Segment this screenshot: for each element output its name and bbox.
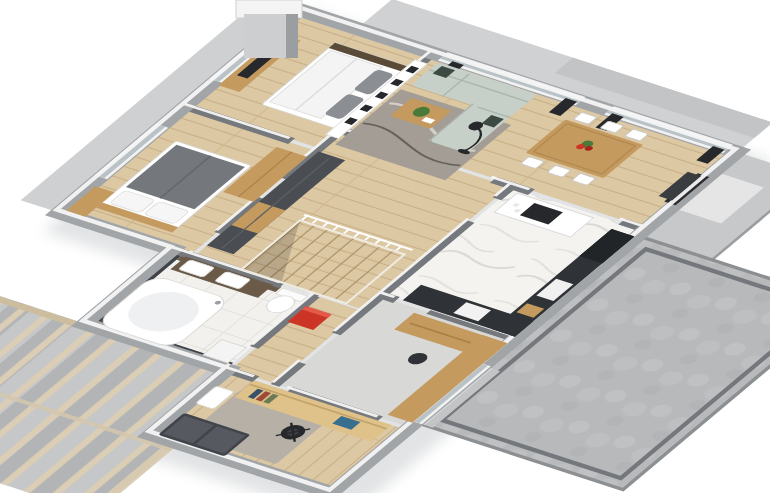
double-bed bbox=[261, 43, 411, 129]
book bbox=[255, 391, 271, 401]
entry-door-mat bbox=[659, 172, 701, 201]
terrace-rim bbox=[421, 238, 770, 490]
utility-room-floor bbox=[278, 297, 512, 426]
ne-roof-band bbox=[357, 0, 770, 152]
utility-room bbox=[319, 313, 507, 423]
red-sideboard bbox=[288, 306, 332, 330]
floor-plan-render bbox=[0, 0, 770, 493]
stool bbox=[404, 351, 431, 366]
desk-shelf bbox=[234, 380, 391, 441]
carport bbox=[0, 290, 256, 493]
terrace-border-frame bbox=[442, 249, 770, 478]
closet-wood-door bbox=[231, 202, 285, 234]
kitchen-sink bbox=[453, 302, 491, 321]
dining-table bbox=[526, 119, 644, 178]
kitchen-counter-bottom bbox=[403, 285, 534, 337]
arc-floor-lamp bbox=[443, 120, 500, 155]
bedroom-2 bbox=[66, 115, 307, 252]
interior-wall-tops bbox=[0, 7, 735, 426]
washbasin-counter bbox=[170, 256, 273, 297]
chimney-body bbox=[244, 14, 296, 58]
daybed bbox=[158, 413, 251, 456]
entry-landing bbox=[677, 173, 764, 223]
bed-frame-edge bbox=[329, 43, 411, 73]
pillow bbox=[324, 93, 366, 119]
master-bedroom bbox=[206, 21, 427, 139]
stair-railing-handrail bbox=[304, 215, 412, 250]
duvet bbox=[270, 50, 383, 118]
laptop bbox=[332, 416, 360, 430]
stair-stringer bbox=[242, 220, 405, 303]
bathroom-floor bbox=[88, 252, 312, 368]
book bbox=[263, 394, 279, 404]
wardrobe bbox=[223, 147, 307, 202]
window-frames bbox=[0, 10, 737, 422]
kitchen-island bbox=[494, 193, 593, 237]
ne-roof-band-outer bbox=[555, 58, 770, 138]
entrance-door bbox=[670, 175, 704, 203]
headboard-shelf bbox=[326, 60, 427, 139]
chimney-roof-top bbox=[236, 0, 302, 18]
ne-roof-band-edge bbox=[357, 25, 742, 152]
chimney-shaded-side bbox=[286, 14, 298, 58]
nw-roof-band bbox=[21, 0, 300, 213]
tv bbox=[237, 48, 280, 78]
terrace bbox=[418, 236, 770, 489]
master-bedroom-floor bbox=[189, 12, 430, 148]
entry-walkway bbox=[644, 154, 770, 260]
floors bbox=[0, 12, 734, 491]
kitchen-counter-right bbox=[492, 229, 634, 337]
sofa-pillow bbox=[482, 115, 504, 127]
kitchen-floor bbox=[386, 188, 642, 337]
sofa-pillow bbox=[433, 66, 456, 78]
bathroom bbox=[95, 254, 307, 365]
exterior-walls bbox=[0, 10, 737, 493]
stair-railing-posts bbox=[304, 217, 409, 251]
dining-chair bbox=[547, 165, 571, 177]
sink-basin bbox=[512, 203, 520, 208]
floor-plan-canvas bbox=[0, 0, 770, 493]
hall-extension-floor bbox=[231, 297, 361, 384]
rug-swirl bbox=[370, 102, 494, 153]
carport-cross-beam bbox=[0, 360, 172, 450]
built-in-closet bbox=[207, 152, 345, 255]
terrace-step bbox=[418, 366, 493, 425]
dining-area bbox=[515, 110, 654, 187]
duvet bbox=[126, 145, 245, 210]
dining-chair bbox=[573, 112, 597, 124]
hallway bbox=[164, 152, 471, 331]
dining-chair bbox=[625, 129, 649, 141]
corner-sofa bbox=[368, 62, 537, 153]
interior-walls bbox=[0, 10, 737, 429]
sink-basin bbox=[513, 209, 521, 214]
office-floor bbox=[154, 372, 404, 491]
washbasin bbox=[178, 260, 214, 278]
coffee-table bbox=[390, 98, 451, 129]
bench bbox=[196, 386, 235, 409]
headboard bbox=[96, 203, 178, 233]
terrace-step bbox=[425, 369, 500, 428]
flower-centerpiece bbox=[574, 139, 598, 152]
living-area-rug bbox=[335, 89, 511, 180]
cooktop bbox=[520, 203, 563, 224]
curtain bbox=[696, 146, 724, 164]
chimney bbox=[236, 0, 302, 58]
dining-chair bbox=[600, 121, 624, 133]
tv-sideboard bbox=[218, 34, 300, 92]
toilet bbox=[259, 288, 307, 316]
walkway-edge bbox=[712, 176, 770, 260]
office-chair bbox=[276, 423, 310, 442]
carport-slab bbox=[0, 290, 256, 493]
living-room bbox=[335, 57, 724, 237]
curtain bbox=[436, 61, 464, 79]
dining-chair bbox=[572, 173, 596, 185]
dining-chair bbox=[521, 157, 545, 169]
corner-bathtub bbox=[95, 275, 231, 349]
roof-edge-bands bbox=[21, 0, 770, 355]
building-shadow bbox=[0, 24, 747, 493]
office-rug bbox=[187, 390, 330, 464]
exterior-wall-tops bbox=[0, 7, 735, 490]
bedroom-2-floor bbox=[62, 108, 315, 254]
oven bbox=[536, 279, 573, 301]
pillow bbox=[353, 69, 395, 95]
carport-header-beam bbox=[0, 292, 253, 382]
hallway-floor bbox=[195, 132, 509, 309]
pillow bbox=[144, 201, 190, 224]
walkway-surface bbox=[644, 154, 770, 260]
pillow bbox=[109, 190, 155, 213]
curtain bbox=[595, 113, 623, 131]
living-room-floor bbox=[345, 55, 734, 227]
carport-roof-beams bbox=[0, 290, 256, 493]
nw-roof-band-edge bbox=[53, 8, 300, 212]
potted-plant bbox=[409, 105, 433, 118]
tub-faucet bbox=[214, 300, 223, 305]
tall-cabinet bbox=[579, 229, 634, 263]
office bbox=[158, 373, 391, 487]
washing-machine bbox=[203, 339, 246, 362]
carport-edge-beam bbox=[89, 377, 250, 493]
rug-swirl bbox=[351, 122, 471, 168]
counter-wood-drawer bbox=[516, 303, 544, 318]
washbasin bbox=[215, 271, 251, 289]
dresser bbox=[66, 186, 114, 217]
stair-descend-shade bbox=[242, 220, 340, 282]
worktop-top bbox=[394, 313, 507, 360]
bathroom-feature-walls bbox=[88, 252, 312, 368]
book bbox=[248, 389, 264, 399]
curtain bbox=[549, 98, 577, 116]
staircase bbox=[240, 215, 413, 304]
book bbox=[421, 117, 435, 124]
terrace-slab bbox=[421, 238, 770, 490]
bed bbox=[96, 141, 252, 233]
window-glass bbox=[0, 10, 737, 422]
kitchen bbox=[393, 193, 639, 337]
stair-treads bbox=[242, 220, 405, 303]
worktop-right bbox=[388, 335, 508, 423]
